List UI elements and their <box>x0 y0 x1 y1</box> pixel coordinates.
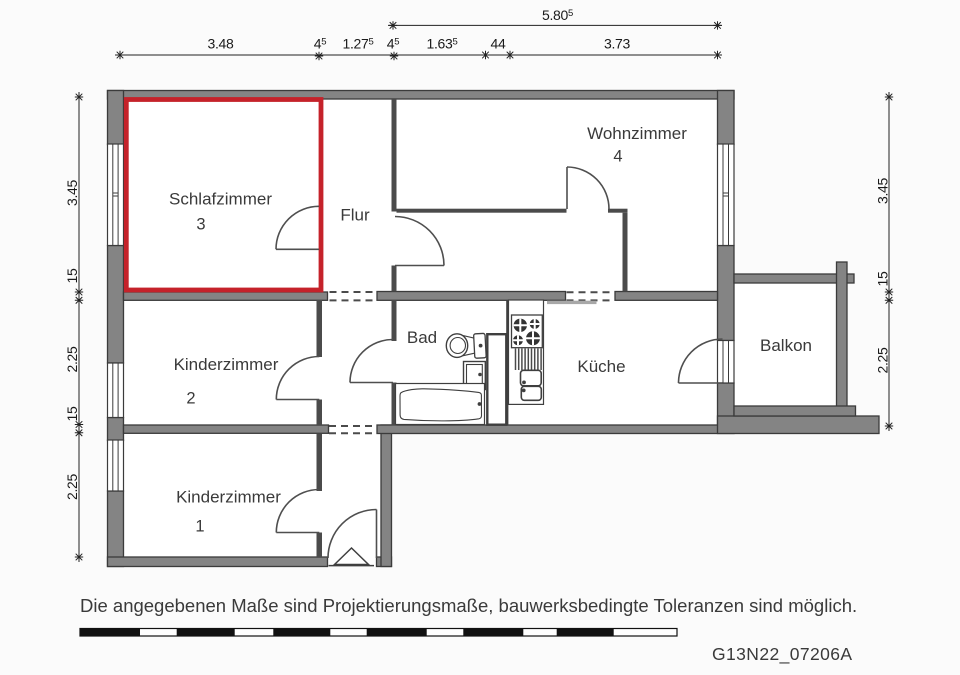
svg-text:Kinderzimmer: Kinderzimmer <box>176 488 281 507</box>
svg-text:3.45: 3.45 <box>875 177 891 204</box>
svg-text:15: 15 <box>875 271 891 286</box>
svg-text:Die angegebenen Maße sind Proj: Die angegebenen Maße sind Projektierungs… <box>80 595 857 616</box>
svg-text:2.25: 2.25 <box>64 346 80 373</box>
svg-text:Schlafzimmer: Schlafzimmer <box>169 190 272 209</box>
svg-text:2.25: 2.25 <box>64 473 80 500</box>
svg-text:4: 4 <box>613 148 622 166</box>
svg-text:1: 1 <box>195 518 204 536</box>
svg-text:3.45: 3.45 <box>64 179 80 206</box>
svg-text:Kinderzimmer: Kinderzimmer <box>174 355 279 374</box>
svg-text:Wohnzimmer: Wohnzimmer <box>587 124 687 143</box>
svg-text:G13N22_07206A: G13N22_07206A <box>712 644 852 665</box>
svg-text:3.73: 3.73 <box>604 36 631 52</box>
svg-text:Bad: Bad <box>407 328 437 347</box>
svg-text:2: 2 <box>186 390 195 408</box>
svg-text:3.48: 3.48 <box>207 36 234 52</box>
svg-text:44: 44 <box>491 36 506 52</box>
svg-text:Balkon: Balkon <box>760 336 812 355</box>
svg-text:Küche: Küche <box>577 357 625 376</box>
svg-text:15: 15 <box>64 406 80 421</box>
svg-text:3: 3 <box>196 216 205 234</box>
svg-text:15: 15 <box>64 268 80 283</box>
svg-text:2.25: 2.25 <box>875 347 891 374</box>
svg-text:Flur: Flur <box>340 206 370 225</box>
